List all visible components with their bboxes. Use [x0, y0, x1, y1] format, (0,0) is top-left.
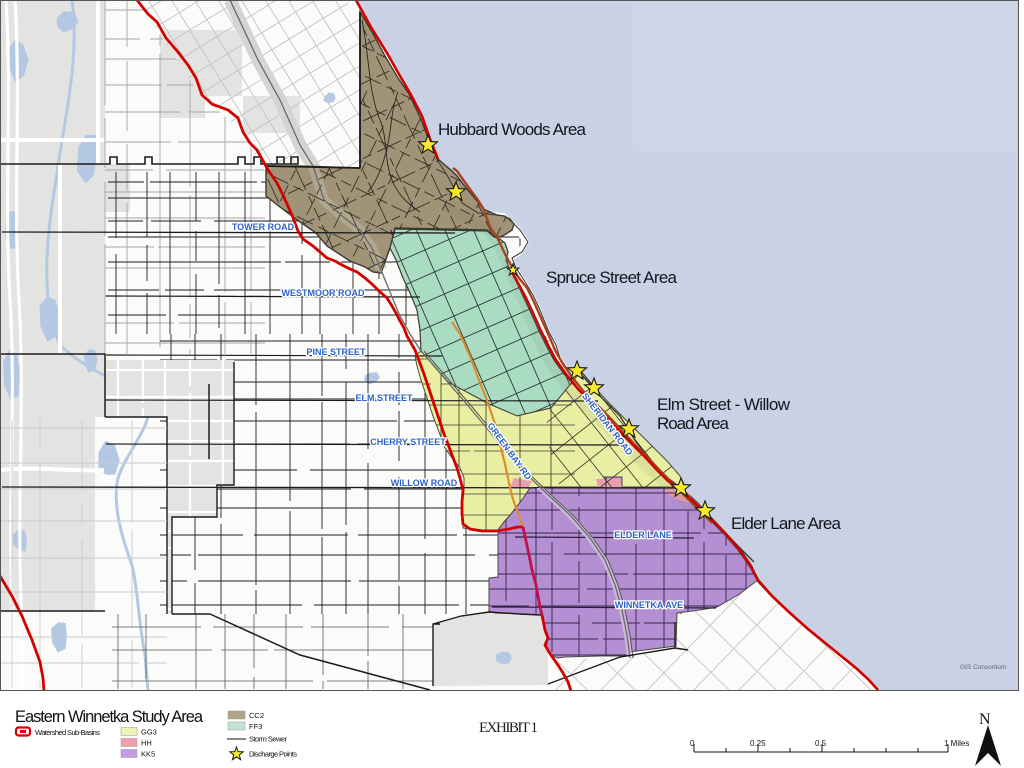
svg-text:EXHIBIT 1: EXHIBIT 1	[479, 720, 538, 736]
svg-text:Hubbard Woods Area: Hubbard Woods Area	[438, 120, 587, 139]
svg-text:ELDER LANE: ELDER LANE	[614, 530, 672, 540]
svg-text:WESTMOOR ROAD: WESTMOOR ROAD	[282, 288, 365, 298]
svg-text:N: N	[979, 711, 991, 728]
svg-text:KK5: KK5	[141, 750, 155, 759]
svg-text:ELM STREET: ELM STREET	[355, 393, 413, 403]
svg-text:WINNETKA AVE: WINNETKA AVE	[615, 600, 683, 610]
svg-text:GIS Consortium: GIS Consortium	[960, 664, 1006, 671]
svg-text:GG3: GG3	[141, 728, 157, 737]
svg-text:Elder Lane Area: Elder Lane Area	[731, 514, 842, 533]
svg-text:Storm Sewer: Storm Sewer	[249, 735, 288, 744]
svg-text:0.5: 0.5	[815, 739, 827, 748]
svg-text:TOWER ROAD: TOWER ROAD	[232, 222, 295, 232]
svg-text:Elm Street - Willow: Elm Street - Willow	[657, 395, 791, 414]
svg-text:PINE STREET: PINE STREET	[306, 347, 366, 357]
svg-text:Watershed Sub-Basins: Watershed Sub-Basins	[35, 728, 100, 737]
svg-text:0: 0	[690, 739, 695, 748]
svg-text:FF3: FF3	[249, 722, 262, 731]
svg-text:CHERRY STREET: CHERRY STREET	[370, 437, 446, 447]
svg-text:CC2: CC2	[249, 711, 264, 720]
svg-text:Spruce Street Area: Spruce Street Area	[546, 268, 678, 287]
svg-text:1 Miles: 1 Miles	[944, 739, 969, 748]
svg-text:Discharge Points: Discharge Points	[249, 750, 297, 759]
svg-text:Eastern Winnetka Study Area: Eastern Winnetka Study Area	[15, 708, 204, 726]
svg-text:HH: HH	[141, 739, 152, 748]
svg-text:0.25: 0.25	[750, 739, 766, 748]
svg-text:Road Area: Road Area	[657, 414, 730, 433]
svg-text:WILLOW ROAD: WILLOW ROAD	[391, 478, 458, 488]
